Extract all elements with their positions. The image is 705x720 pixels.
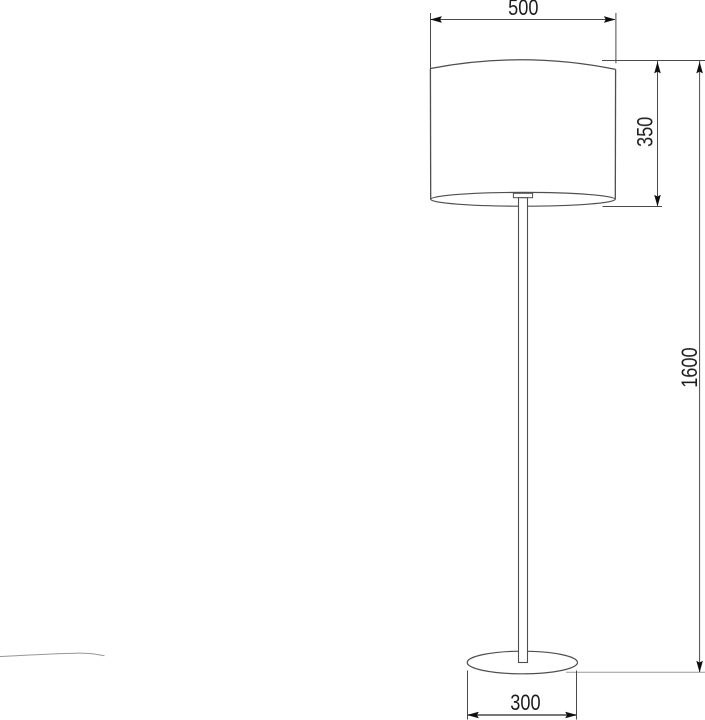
svg-text:350: 350 (634, 117, 658, 147)
svg-text:300: 300 (510, 691, 540, 715)
svg-text:500: 500 (508, 0, 538, 20)
svg-text:1600: 1600 (678, 347, 702, 387)
